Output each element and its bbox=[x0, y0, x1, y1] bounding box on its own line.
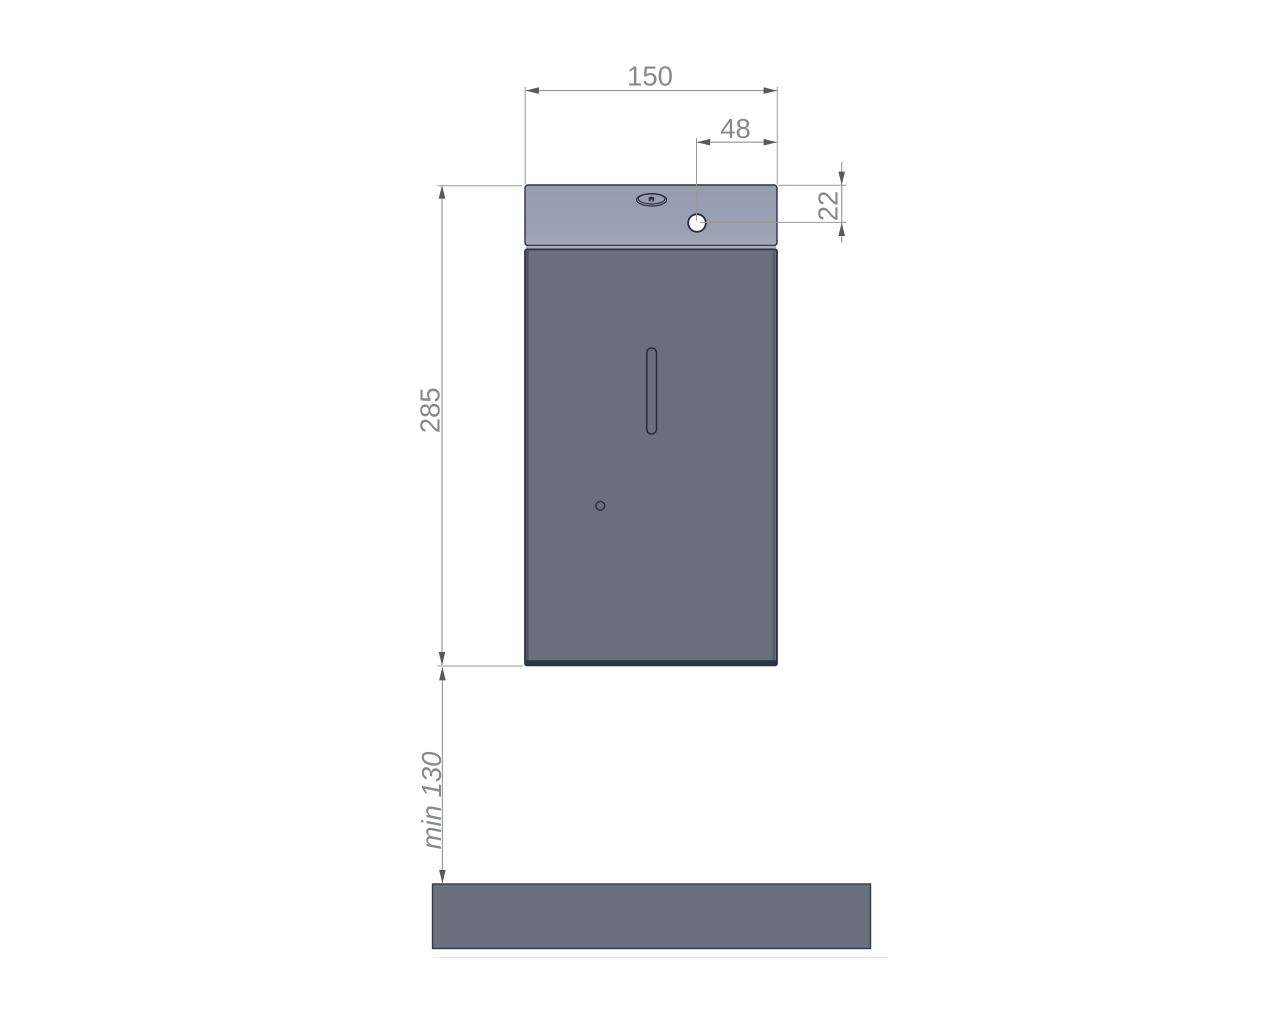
svg-text:48: 48 bbox=[720, 113, 751, 144]
svg-text:min 130: min 130 bbox=[416, 751, 447, 850]
svg-text:285: 285 bbox=[415, 387, 446, 433]
svg-text:22: 22 bbox=[813, 191, 844, 222]
svg-text:150: 150 bbox=[627, 61, 673, 92]
